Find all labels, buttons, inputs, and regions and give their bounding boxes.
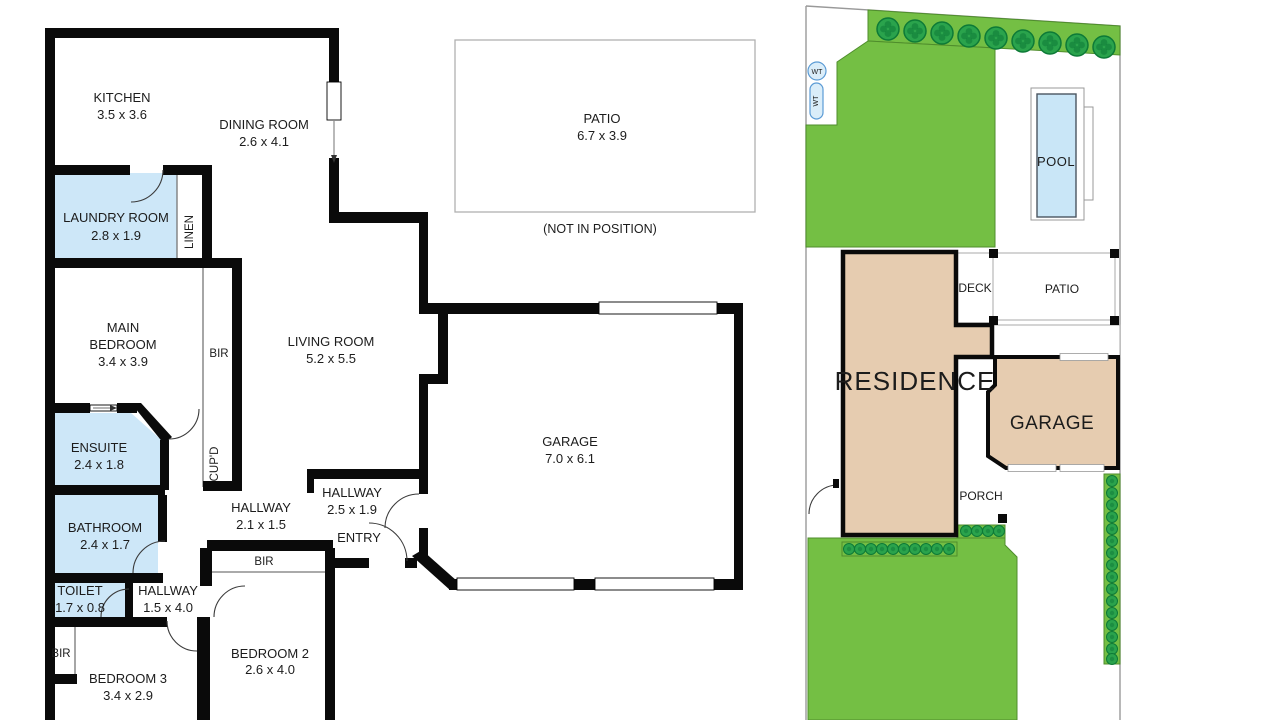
patio-dims: 6.7 x 3.9 (577, 128, 627, 143)
laundry-dims: 2.8 x 1.9 (91, 228, 141, 243)
back-lawn (806, 41, 995, 247)
main-bedroom-label-line2: BEDROOM (89, 337, 156, 352)
floorplan-canvas: KITCHEN 3.5 x 3.6 DINING ROOM 2.6 x 4.1 … (0, 0, 1280, 720)
hall-bed-dims: 1.5 x 4.0 (143, 600, 193, 615)
bir-bed2-label: BIR (254, 556, 273, 568)
toilet-label: TOILET (57, 583, 102, 598)
cupd-label: CUP'D (209, 447, 221, 482)
water-tank1-label: WT (812, 69, 824, 76)
patio-note: (NOT IN POSITION) (543, 222, 657, 236)
garage-window-bottom-left (457, 578, 574, 590)
bedroom3-label: BEDROOM 3 (89, 671, 167, 686)
main-bedroom-label-line1: MAIN (107, 320, 140, 335)
patio-label: PATIO (583, 111, 620, 126)
kitchen-label: KITCHEN (93, 90, 150, 105)
kitchen-dims: 3.5 x 3.6 (97, 107, 147, 122)
toilet-dims: 1.7 x 0.8 (55, 600, 105, 615)
site-garage-label: GARAGE (1010, 413, 1094, 434)
floorplan-page: KITCHEN 3.5 x 3.6 DINING ROOM 2.6 x 4.1 … (0, 0, 1280, 720)
bedroom2-dims: 2.6 x 4.0 (245, 662, 295, 677)
patio-outline (455, 40, 755, 212)
garage-dims: 7.0 x 6.1 (545, 451, 595, 466)
bir-main-label: BIR (209, 348, 228, 360)
garage-label: GARAGE (542, 434, 598, 449)
hall-mid-dims: 2.1 x 1.5 (236, 517, 286, 532)
hall-mid-label: HALLWAY (231, 500, 291, 515)
hall-bed-label: HALLWAY (138, 583, 198, 598)
garage-window-bottom-right (595, 578, 714, 590)
porch-post (998, 514, 1007, 523)
main-bedroom-door-arc (169, 409, 199, 439)
porch-label: PORCH (959, 489, 1002, 503)
bedroom2-door-arc (214, 586, 245, 617)
site-patio-label: PATIO (1045, 282, 1079, 296)
side-gate-post (833, 479, 839, 488)
living-label: LIVING ROOM (288, 334, 375, 349)
garage-window-top (599, 302, 717, 314)
laundry-label: LAUNDRY ROOM (63, 210, 169, 225)
bathroom-label: BATHROOM (68, 520, 142, 535)
bedroom3-door-arc (167, 621, 197, 651)
garage-internal-door-arc (385, 494, 419, 528)
water-tank2-label: WT (813, 95, 820, 107)
dining-dims: 2.6 x 4.1 (239, 134, 289, 149)
hall-entry-dims: 2.5 x 1.9 (327, 502, 377, 517)
ensuite-label: ENSUITE (71, 440, 128, 455)
dining-label: DINING ROOM (219, 117, 309, 132)
bedroom2-label: BEDROOM 2 (231, 646, 309, 661)
residence-label: RESIDENCE (835, 366, 996, 396)
paved-strip (992, 325, 1120, 357)
entry-label: ENTRY (337, 530, 381, 545)
deck-label: DECK (958, 281, 991, 295)
dining-window (327, 82, 341, 120)
living-dims: 5.2 x 5.5 (306, 351, 356, 366)
linen-label: LINEN (184, 215, 196, 249)
bedroom3-dims: 3.4 x 2.9 (103, 688, 153, 703)
bathroom-dims: 2.4 x 1.7 (80, 537, 130, 552)
side-gate-arc (809, 485, 838, 514)
bathroom-area (53, 495, 158, 575)
bir-bed3-label: BIR (51, 648, 70, 660)
hall-entry-label: HALLWAY (322, 485, 382, 500)
main-bedroom-dims: 3.4 x 3.9 (98, 354, 148, 369)
pool-label: POOL (1037, 154, 1075, 169)
ensuite-dims: 2.4 x 1.8 (74, 457, 124, 472)
